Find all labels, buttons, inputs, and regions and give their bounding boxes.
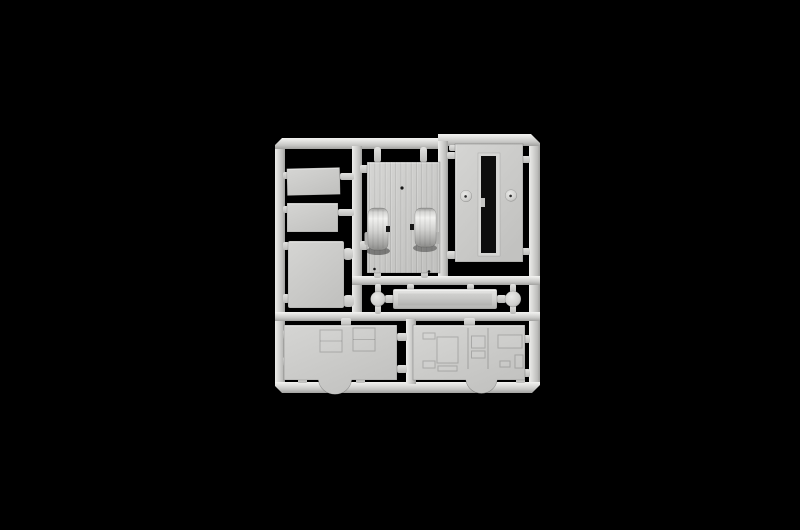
gate-pin: [374, 147, 381, 163]
panel-detail: [437, 337, 458, 363]
panel-detail: [472, 336, 486, 348]
part-small-panel-1: [287, 167, 341, 195]
sprue-group: [275, 134, 540, 394]
part-long-sill: [393, 289, 497, 309]
boss-left-hole: [464, 195, 467, 198]
panel-detail: [515, 355, 523, 368]
gate: [447, 251, 456, 259]
gate: [340, 173, 354, 180]
part-small-panel-2: [287, 203, 338, 232]
floor-notch-left: [386, 226, 390, 232]
part-slot-panel: [455, 144, 523, 262]
gate: [397, 365, 407, 373]
gate: [343, 295, 354, 307]
gate: [338, 209, 354, 216]
part-disc-left: [371, 292, 386, 307]
floor-panel-hole: [400, 186, 403, 189]
gate: [385, 295, 394, 303]
panel-detail: [438, 366, 457, 371]
disc-left: [371, 292, 386, 307]
gate: [447, 152, 456, 159]
panel-detail: [472, 351, 486, 358]
panel-detail: [500, 361, 510, 367]
large-panel: [288, 241, 344, 308]
disc-right: [505, 291, 521, 307]
boss-right-hole: [509, 195, 512, 198]
gate: [397, 333, 407, 341]
part-large-panel: [288, 241, 344, 308]
photo-canvas: [0, 0, 800, 530]
part-floor-panel: [365, 162, 441, 273]
sprue-photo: [0, 0, 800, 530]
part-disc-right: [505, 291, 521, 307]
frame-rail-right: [529, 134, 540, 393]
panel-detail: [423, 361, 435, 368]
small-panel-1: [287, 167, 341, 195]
floor-notch-right: [410, 224, 414, 230]
slot-tab: [481, 198, 485, 207]
floor-hole-bottom-left: [373, 268, 376, 271]
gate: [343, 248, 353, 260]
floor-hole-bottom-right: [428, 270, 431, 273]
small-panel-2: [287, 203, 338, 232]
gate: [497, 295, 506, 303]
gate-pin: [420, 147, 427, 163]
panel-detail: [498, 335, 522, 348]
sill-face: [398, 294, 492, 306]
panel-detail: [423, 333, 435, 339]
